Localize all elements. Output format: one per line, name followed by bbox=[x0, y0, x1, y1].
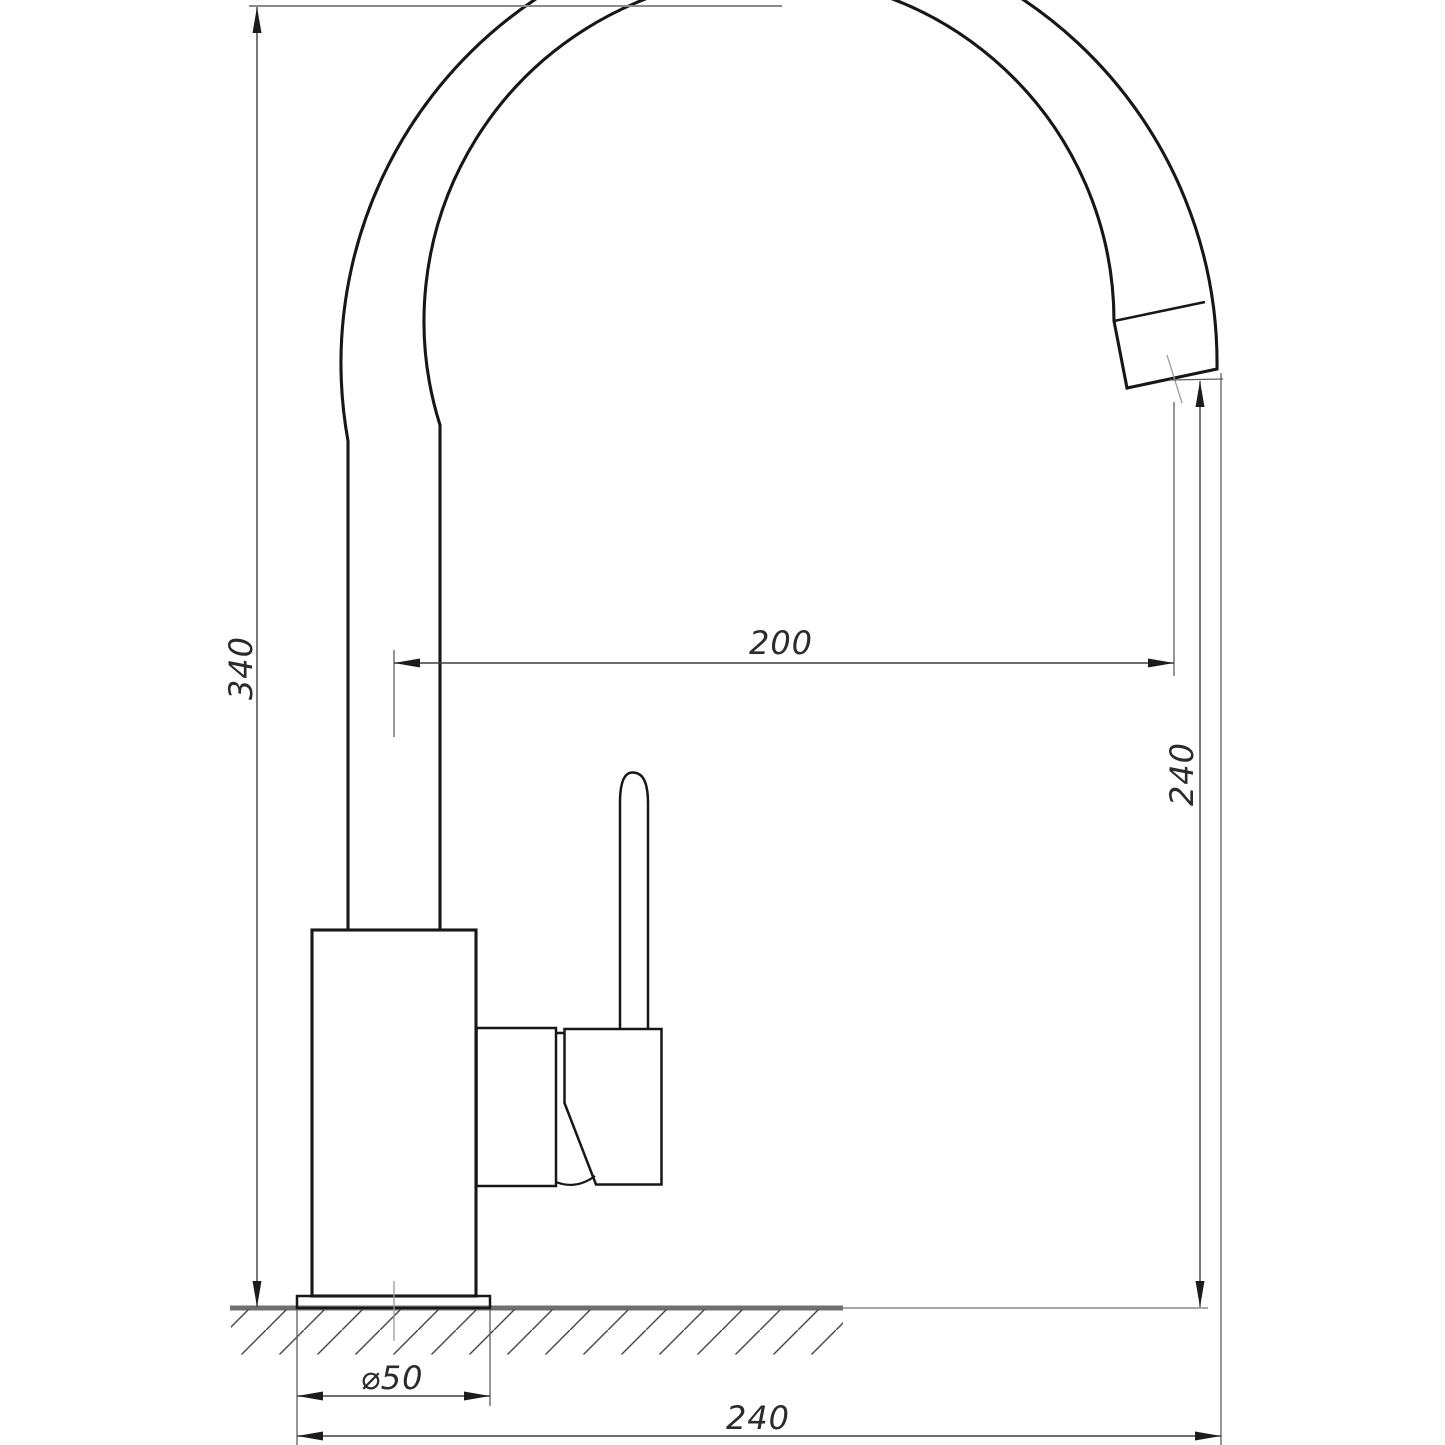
handle-base bbox=[565, 1029, 662, 1185]
technical-drawing-canvas: 340 200 240 ⌀50 bbox=[0, 0, 1445, 1445]
arrowhead bbox=[253, 1281, 262, 1307]
faucet-body bbox=[312, 930, 476, 1296]
handle-skirt-arc bbox=[556, 1176, 595, 1185]
aerator-seam bbox=[1114, 302, 1205, 321]
spout-tube bbox=[341, 0, 1217, 930]
arrowhead bbox=[464, 1392, 490, 1401]
section-hatching bbox=[231, 1310, 843, 1355]
arrowhead bbox=[1196, 381, 1205, 407]
arrowhead bbox=[1196, 1281, 1205, 1307]
dimension-label-overall-depth: 240 bbox=[726, 1399, 790, 1437]
dimension-label-overall-height: 340 bbox=[222, 636, 260, 700]
arrowhead bbox=[1195, 1432, 1221, 1441]
cartridge-housing bbox=[477, 1028, 557, 1186]
extension-tick-tip bbox=[1170, 379, 1223, 380]
arrowhead bbox=[297, 1392, 323, 1401]
arrowhead bbox=[253, 7, 262, 33]
dimension-overall-depth: 240 bbox=[297, 373, 1221, 1445]
mounting-surface bbox=[230, 1308, 1208, 1355]
dimension-label-spout-reach: 200 bbox=[749, 624, 813, 662]
arrowhead bbox=[297, 1432, 323, 1441]
dimension-label-base-diameter: ⌀50 bbox=[361, 1359, 424, 1397]
arrowhead bbox=[394, 659, 420, 668]
dimension-spout-reach: 200 bbox=[394, 402, 1174, 737]
faucet-outline bbox=[297, 0, 1217, 1341]
faucet-dimension-drawing: 340 200 240 ⌀50 bbox=[0, 0, 1445, 1445]
dimension-label-outlet-height: 240 bbox=[1163, 742, 1201, 806]
arrowhead bbox=[1148, 659, 1174, 668]
dimension-outlet-height: 240 bbox=[1163, 379, 1223, 1307]
lever-handle bbox=[620, 773, 648, 1029]
dimension-overall-height: 340 bbox=[222, 6, 782, 1307]
